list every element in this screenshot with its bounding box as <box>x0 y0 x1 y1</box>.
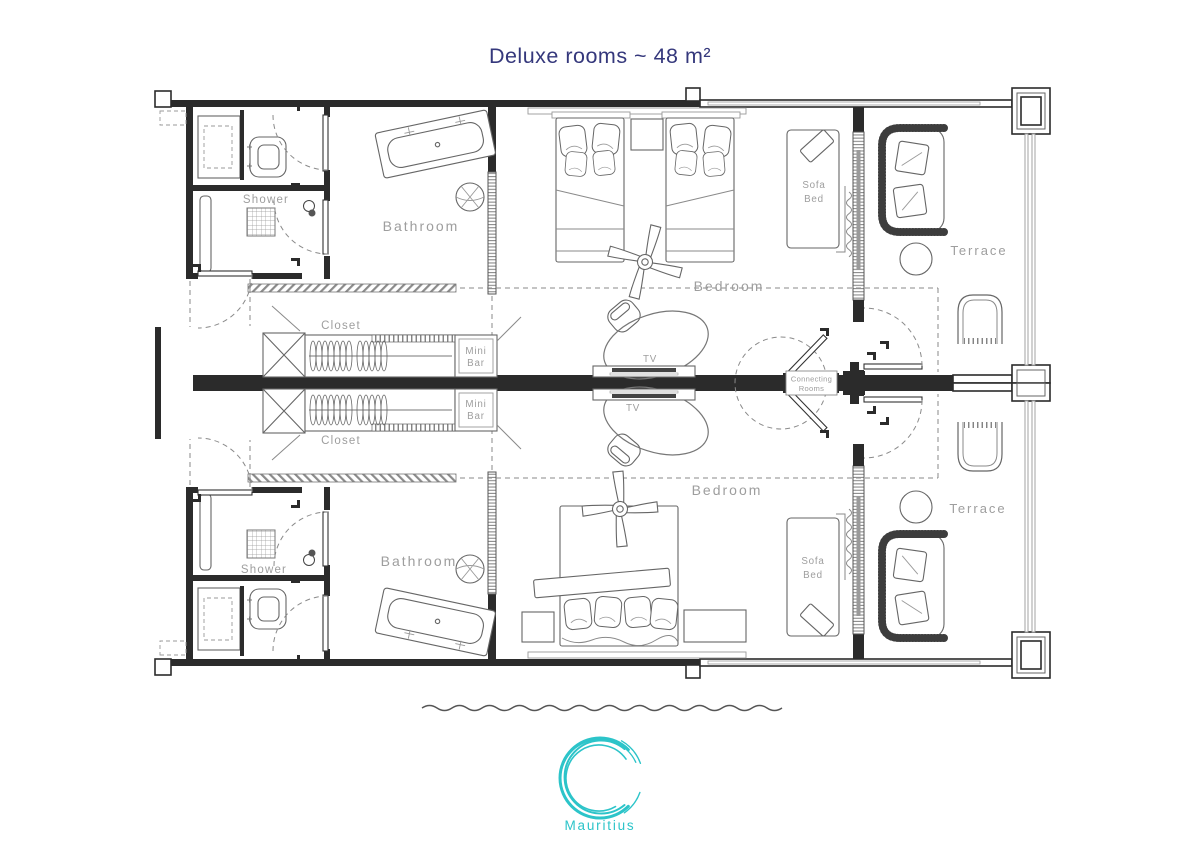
label-sofabed-bottom-line2: Bed <box>803 570 823 581</box>
label-bedroom-bottom: Bedroom <box>692 482 763 498</box>
floorplan-drawing: Connecting Rooms Shower Bathroom Bedroom… <box>0 0 1200 849</box>
label-minibar-top-line2: Bar <box>467 358 485 369</box>
label-sofabed-bottom-line1: Sofa <box>801 556 824 567</box>
water-wave <box>422 706 782 711</box>
label-connecting-line2: Rooms <box>799 384 825 393</box>
nightstand <box>631 119 663 150</box>
label-sofabed-top-line1: Sofa <box>802 180 825 191</box>
brand-name: Mauritius <box>565 818 636 833</box>
bedroom-top-beds <box>552 112 740 262</box>
label-bathroom-top: Bathroom <box>383 218 460 234</box>
floorplan-page: Deluxe rooms ~ 48 m² <box>0 0 1200 849</box>
label-terrace-bottom: Terrace <box>949 501 1006 516</box>
c-wave-logo <box>560 738 640 819</box>
label-tv-bottom: TV <box>626 403 640 414</box>
label-connecting-line1: Connecting <box>791 375 832 384</box>
bench <box>684 610 746 642</box>
label-sofabed-top-line2: Bed <box>804 194 824 205</box>
label-minibar-top-line1: Mini <box>465 346 486 357</box>
nightstand-left <box>522 612 554 642</box>
label-minibar-bottom-line1: Mini <box>465 399 486 410</box>
label-minibar-bottom-line2: Bar <box>467 411 485 422</box>
label-bathroom-bottom: Bathroom <box>381 553 458 569</box>
bedroom-bottom-bed <box>522 506 746 646</box>
label-tv-top: TV <box>643 354 657 365</box>
label-bedroom-top: Bedroom <box>694 278 765 294</box>
label-closet-top: Closet <box>321 320 361 332</box>
label-closet-bottom: Closet <box>321 435 361 447</box>
label-terrace-top: Terrace <box>950 243 1007 258</box>
label-shower-top: Shower <box>243 194 289 206</box>
label-shower-bottom: Shower <box>241 564 287 576</box>
